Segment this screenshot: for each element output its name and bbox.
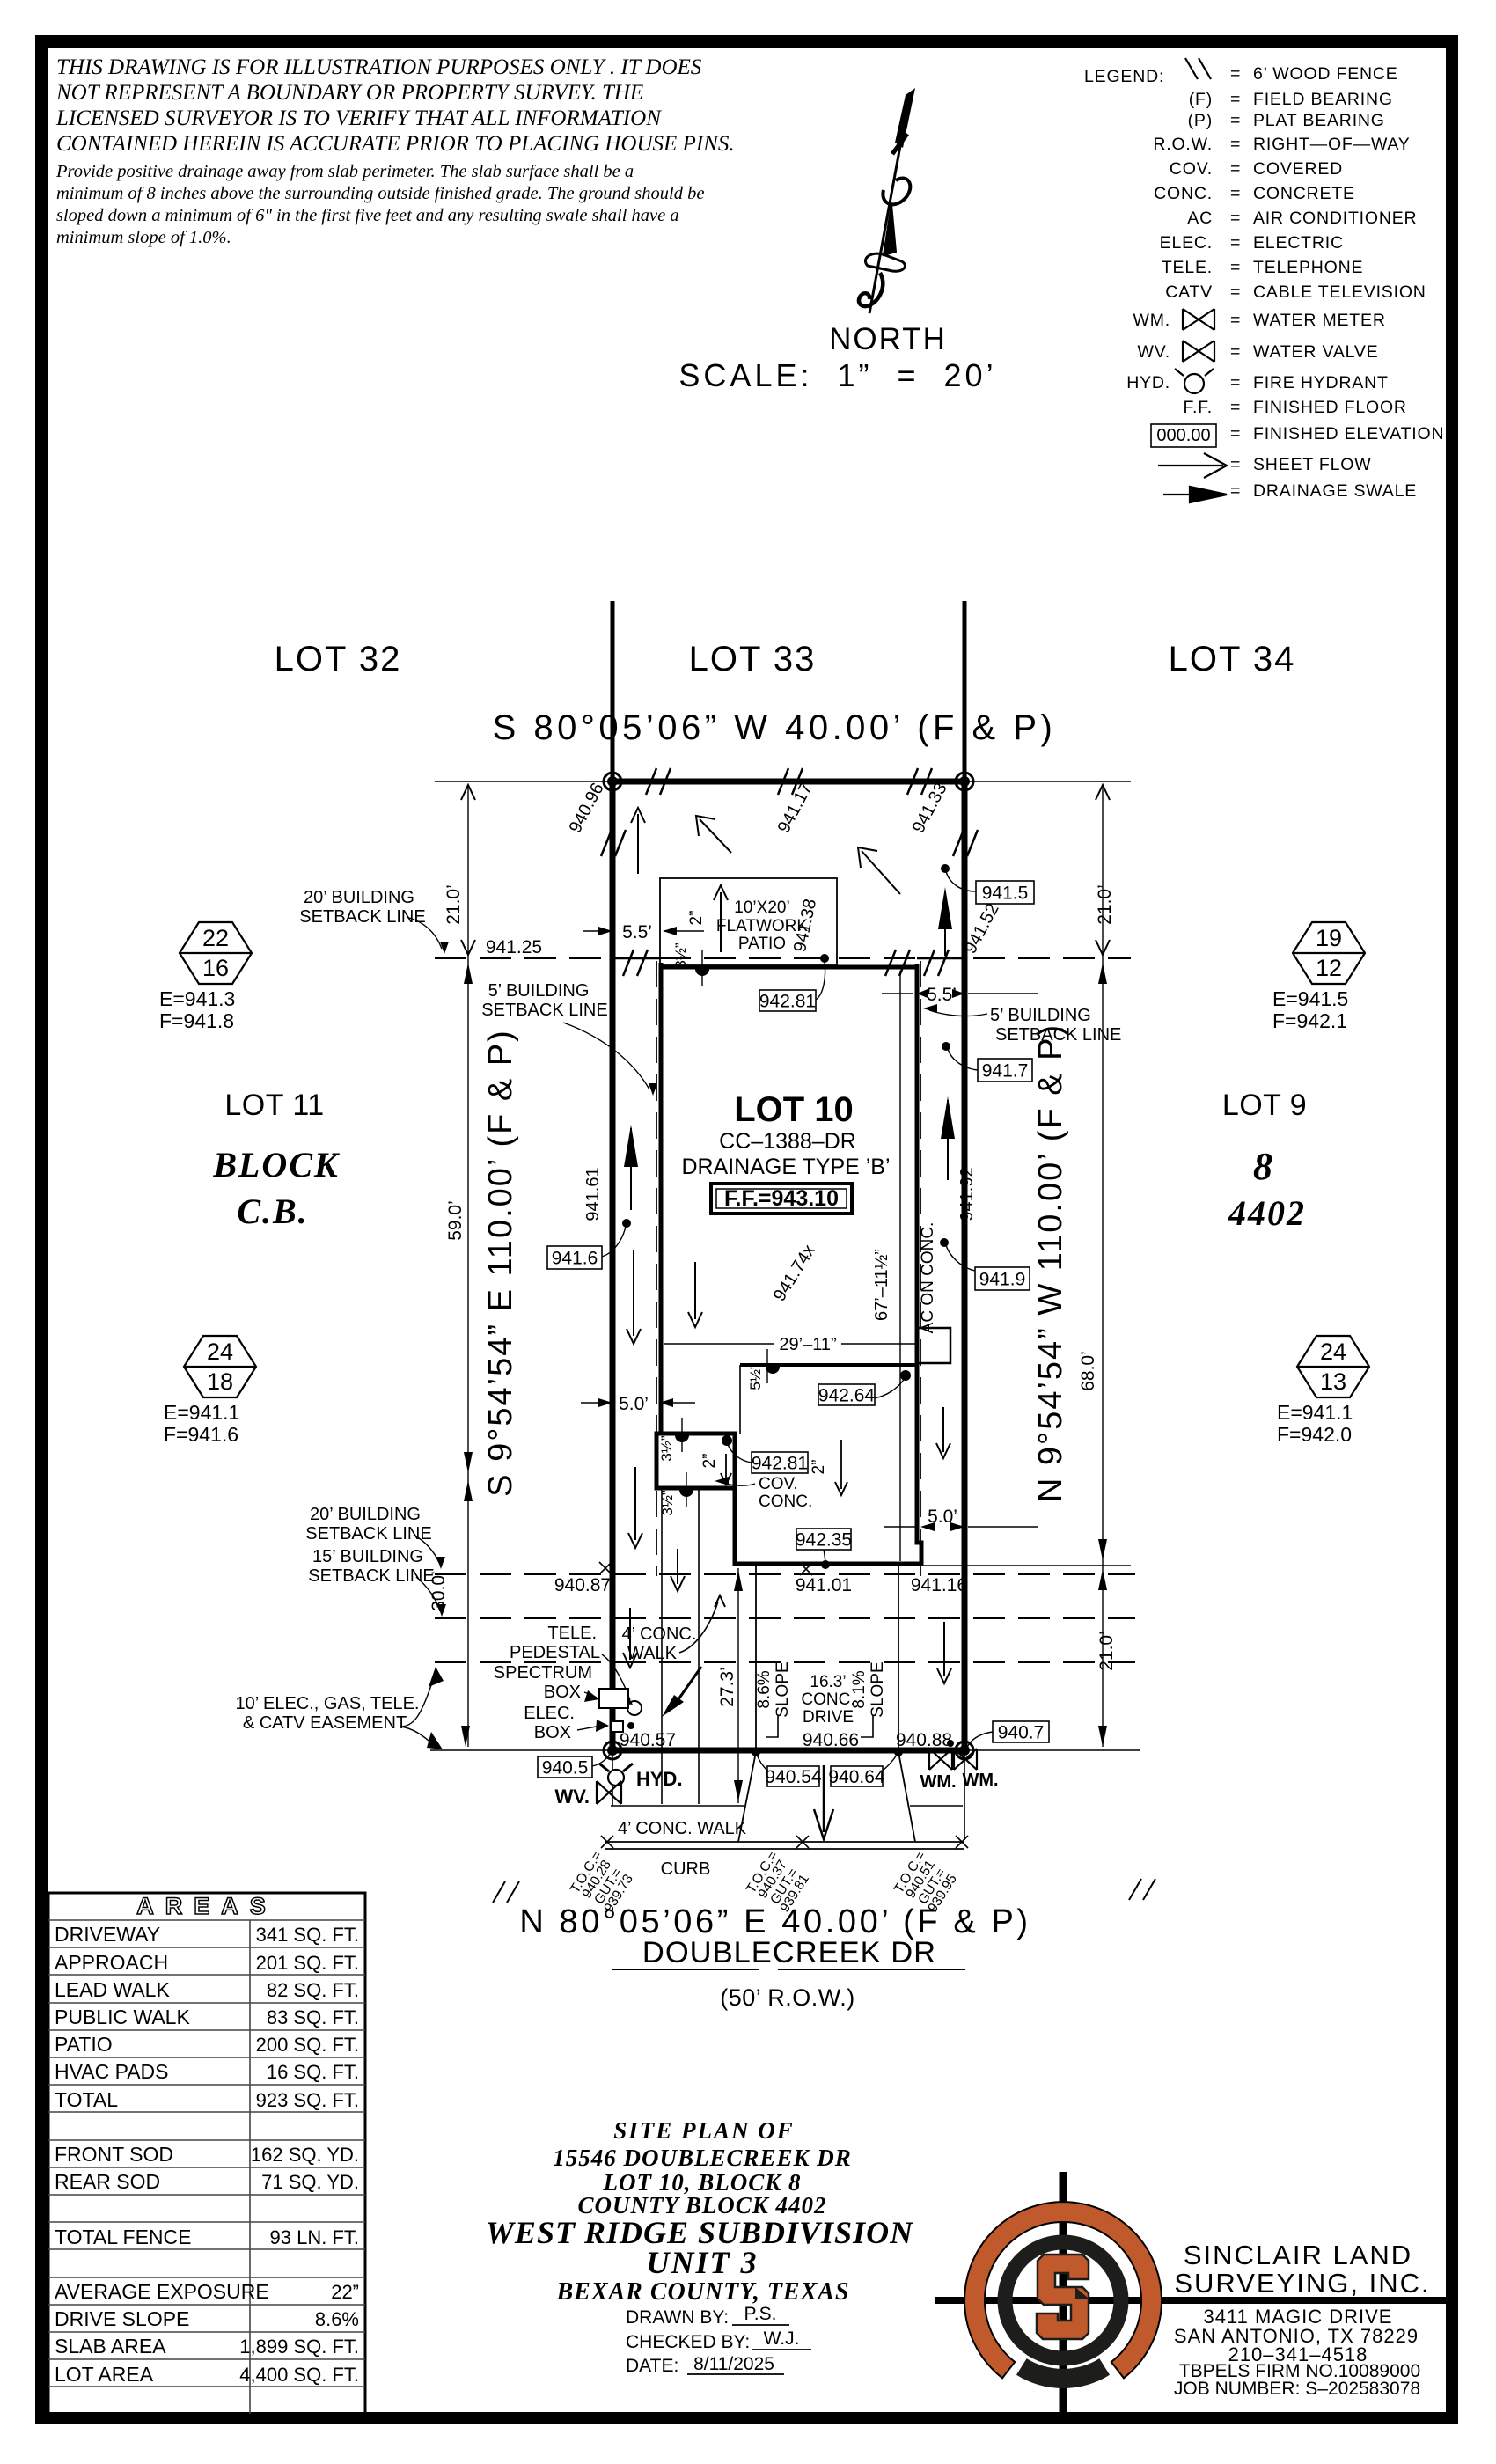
svg-text:=: = — [1230, 455, 1241, 474]
svg-text:AVERAGE EXPOSURE: AVERAGE EXPOSURE — [55, 2280, 269, 2303]
svg-text:941.16: 941.16 — [911, 1575, 967, 1595]
svg-text:10’ ELEC., GAS, TELE.: 10’ ELEC., GAS, TELE. — [236, 1694, 420, 1713]
svg-text:15546 DOUBLECREEK DR: 15546 DOUBLECREEK DR — [553, 2145, 852, 2171]
svg-text:DRIVEWAY: DRIVEWAY — [55, 1923, 160, 1946]
svg-text:59.0’: 59.0’ — [445, 1200, 466, 1241]
svg-text:941.9: 941.9 — [979, 1269, 1026, 1289]
svg-text:PEDESTAL: PEDESTAL — [510, 1643, 600, 1662]
svg-text:DRAINAGE SWALE: DRAINAGE SWALE — [1253, 481, 1417, 501]
svg-text:E=941.1: E=941.1 — [1277, 1401, 1353, 1424]
svg-text:FRONT SOD: FRONT SOD — [55, 2143, 173, 2166]
svg-text:18: 18 — [207, 1368, 233, 1395]
svg-text:16: 16 — [202, 955, 229, 981]
svg-text:83 SQ. FT.: 83 SQ. FT. — [267, 2006, 359, 2028]
svg-text:CONC.: CONC. — [759, 1492, 812, 1511]
svg-text:67’–11½”: 67’–11½” — [872, 1249, 891, 1321]
svg-text:LOT 32: LOT 32 — [275, 640, 402, 678]
svg-text:=: = — [1230, 184, 1241, 203]
svg-text:LOT 10: LOT 10 — [734, 1090, 854, 1129]
svg-text:5.5’: 5.5’ — [927, 985, 957, 1005]
svg-text:3½”: 3½” — [672, 942, 689, 969]
svg-text:1,899 SQ. FT.: 1,899 SQ. FT. — [239, 2336, 359, 2358]
svg-text:LOT 11: LOT 11 — [224, 1089, 324, 1122]
svg-text:ELEC.: ELEC. — [524, 1704, 575, 1723]
svg-text:DOUBLECREEK DR: DOUBLECREEK DR — [642, 1936, 936, 1969]
svg-text:SURVEYING, INC.: SURVEYING, INC. — [1174, 2268, 1430, 2299]
svg-text:S 9°54’54” E 110.00’ (F &: S 9°54’54” E 110.00’ (F & P) — [482, 1029, 519, 1497]
svg-text:(50’ R.O.W.): (50’ R.O.W.) — [720, 1984, 855, 2011]
svg-text:SHEET FLOW: SHEET FLOW — [1253, 455, 1371, 474]
svg-text:=: = — [1230, 342, 1241, 362]
svg-text:JOB NUMBER: S–202583078: JOB NUMBER: S–202583078 — [1174, 2379, 1420, 2399]
svg-text:5’ BUILDING: 5’ BUILDING — [488, 981, 590, 1001]
svg-text:21.0’: 21.0’ — [1095, 884, 1115, 925]
svg-text:942.35: 942.35 — [796, 1529, 852, 1550]
svg-text:162 SQ. YD.: 162 SQ. YD. — [251, 2144, 359, 2166]
svg-text:CONTAINED HEREIN IS ACCURATE P: CONTAINED HEREIN IS ACCURATE PRIOR TO PL… — [56, 132, 735, 156]
svg-text:F=942.1: F=942.1 — [1272, 1009, 1347, 1032]
svg-text:20’ BUILDING: 20’ BUILDING — [304, 888, 414, 907]
svg-text:E=941.5: E=941.5 — [1272, 987, 1348, 1010]
svg-text:923 SQ. FT.: 923 SQ. FT. — [256, 2089, 359, 2111]
svg-text:941.7: 941.7 — [982, 1060, 1029, 1081]
svg-text:LOT 33: LOT 33 — [689, 640, 817, 678]
svg-text:8.1%: 8.1% — [850, 1670, 869, 1708]
svg-text:SETBACK LINE: SETBACK LINE — [308, 1566, 434, 1586]
svg-text:C.B.: C.B. — [237, 1192, 308, 1231]
svg-text:HYD.: HYD. — [1126, 373, 1170, 392]
svg-text:UNIT 3: UNIT 3 — [647, 2245, 759, 2280]
svg-text:940.87: 940.87 — [554, 1575, 611, 1595]
svg-text:=: = — [1230, 311, 1241, 330]
svg-text:ELEC.: ELEC. — [1160, 233, 1213, 253]
svg-text:WM.: WM. — [962, 1771, 998, 1790]
svg-text:BOX: BOX — [544, 1683, 581, 1702]
svg-text:E=941.3: E=941.3 — [159, 987, 235, 1010]
svg-text:21.0’: 21.0’ — [444, 884, 464, 925]
svg-text:=: = — [1230, 258, 1241, 277]
svg-text:WATER VALVE: WATER VALVE — [1253, 342, 1378, 362]
svg-text:AC: AC — [1187, 209, 1213, 228]
svg-text:& CATV EASEMENT: & CATV EASEMENT — [243, 1713, 407, 1733]
svg-text:CC–1388–DR: CC–1388–DR — [719, 1129, 856, 1154]
svg-text:RIGHT—OF—WAY: RIGHT—OF—WAY — [1253, 135, 1411, 154]
svg-text:COV.: COV. — [1170, 159, 1213, 179]
svg-text:DATE:: DATE: — [626, 2356, 678, 2376]
svg-text:TELE.: TELE. — [547, 1624, 597, 1643]
svg-text:TOTAL: TOTAL — [55, 2088, 118, 2111]
svg-text:APPROACH: APPROACH — [55, 1951, 168, 1974]
svg-text:940.88: 940.88 — [896, 1730, 952, 1750]
svg-text:HVAC PADS: HVAC PADS — [55, 2060, 169, 2083]
svg-text:SLOPE: SLOPE — [869, 1661, 887, 1717]
svg-text:=: = — [1230, 135, 1241, 154]
svg-text:940.54: 940.54 — [765, 1767, 822, 1787]
svg-text:15’ BUILDING: 15’ BUILDING — [312, 1547, 423, 1566]
svg-text:minimum of 8 inches above the: minimum of 8 inches above the surroundin… — [56, 184, 704, 203]
svg-text:5.0’: 5.0’ — [619, 1394, 649, 1414]
svg-text:8.6%: 8.6% — [315, 2308, 359, 2330]
svg-text:S 80°05’06” W 40.00’ (F &: S 80°05’06” W 40.00’ (F & P) — [493, 708, 1057, 747]
svg-text:29’–11”: 29’–11” — [779, 1335, 836, 1354]
svg-text:PUBLIC WALK: PUBLIC WALK — [55, 2006, 190, 2028]
svg-text:NORTH: NORTH — [829, 322, 947, 356]
svg-text:WATER METER: WATER METER — [1253, 311, 1386, 330]
svg-text:BLOCK: BLOCK — [212, 1145, 340, 1184]
svg-text:LOT 9: LOT 9 — [1222, 1089, 1307, 1122]
svg-text:940.66: 940.66 — [803, 1730, 859, 1750]
svg-text:CURB: CURB — [661, 1859, 711, 1879]
svg-text:DRAINAGE TYPE ’B’: DRAINAGE TYPE ’B’ — [681, 1155, 890, 1179]
svg-text:COVERED: COVERED — [1253, 159, 1343, 179]
svg-text:CONC.: CONC. — [801, 1690, 854, 1709]
svg-text:LICENSED SURVEYOR IS TO VERIFY: LICENSED SURVEYOR IS TO VERIFY THAT ALL … — [55, 106, 662, 130]
svg-text:SLOPE: SLOPE — [774, 1661, 792, 1717]
svg-text:F.F.: F.F. — [1183, 398, 1213, 417]
svg-text:NOT REPRESENT A BOUNDARY OR PR: NOT REPRESENT A BOUNDARY OR PROPERTY SUR… — [55, 81, 643, 105]
svg-text:LEAD WALK: LEAD WALK — [55, 1978, 170, 2001]
svg-text:TELEPHONE: TELEPHONE — [1253, 258, 1363, 277]
svg-text:CONCRETE: CONCRETE — [1253, 184, 1355, 203]
svg-text:940.57: 940.57 — [620, 1730, 676, 1750]
svg-text:CABLE TELEVISION: CABLE TELEVISION — [1253, 282, 1426, 302]
svg-text:=: = — [1230, 233, 1241, 253]
svg-text:WM.: WM. — [920, 1772, 956, 1792]
svg-text:F=941.8: F=941.8 — [159, 1009, 234, 1032]
svg-text:2”: 2” — [700, 1454, 719, 1469]
svg-text:(F): (F) — [1189, 90, 1213, 109]
svg-text:BEXAR COUNTY, TEXAS: BEXAR COUNTY, TEXAS — [555, 2278, 849, 2306]
svg-text:=: = — [1230, 424, 1241, 444]
svg-text:10’X20’: 10’X20’ — [734, 898, 789, 917]
svg-text:5’ BUILDING: 5’ BUILDING — [990, 1006, 1091, 1025]
svg-text:CATV: CATV — [1165, 282, 1213, 302]
svg-text:201 SQ. FT.: 201 SQ. FT. — [256, 1952, 359, 1974]
svg-text:24: 24 — [1320, 1338, 1346, 1365]
svg-text:SETBACK LINE: SETBACK LINE — [305, 1524, 431, 1544]
svg-text:PATIO: PATIO — [55, 2033, 113, 2056]
svg-text:4’ CONC.: 4’ CONC. — [622, 1624, 697, 1644]
svg-text:=: = — [1230, 373, 1241, 392]
svg-text:8: 8 — [1253, 1145, 1272, 1188]
svg-text:93 LN. FT.: 93 LN. FT. — [270, 2226, 359, 2248]
svg-text:PLAT BEARING: PLAT BEARING — [1253, 111, 1385, 130]
svg-text:SITE PLAN OF: SITE PLAN OF — [613, 2117, 795, 2144]
svg-text:AC ON CONC.: AC ON CONC. — [919, 1222, 937, 1334]
svg-text:REAR SOD: REAR SOD — [55, 2170, 160, 2193]
svg-text:941.61: 941.61 — [583, 1167, 603, 1221]
svg-text:SCALE: 1” = 20’: SCALE: 1” = 20’ — [678, 357, 996, 393]
svg-text:SINCLAIR LAND: SINCLAIR LAND — [1184, 2240, 1412, 2270]
svg-text:AREAS: AREAS — [136, 1893, 277, 1919]
svg-text:21.0’: 21.0’ — [1096, 1631, 1117, 1671]
svg-text:000.00: 000.00 — [1156, 426, 1210, 445]
svg-text:4402: 4402 — [1228, 1193, 1306, 1233]
svg-text:THIS DRAWING IS FOR ILLUSTRATI: THIS DRAWING IS FOR ILLUSTRATION PURPOSE… — [56, 55, 702, 79]
svg-text:5.0’: 5.0’ — [928, 1507, 957, 1527]
svg-text:FINISHED ELEVATION: FINISHED ELEVATION — [1253, 424, 1444, 444]
svg-text:3½”: 3½” — [659, 1490, 676, 1516]
svg-text:=: = — [1230, 481, 1241, 501]
svg-text:P.S.: P.S. — [744, 2304, 777, 2324]
svg-text:SPECTRUM: SPECTRUM — [494, 1663, 592, 1683]
svg-text:PATIO: PATIO — [738, 935, 786, 953]
svg-text:8.6%: 8.6% — [755, 1670, 774, 1708]
svg-text:2”: 2” — [810, 1460, 828, 1475]
svg-text:W.J.: W.J. — [764, 2328, 800, 2349]
svg-text:SLAB AREA: SLAB AREA — [55, 2335, 166, 2358]
svg-text:6’ WOOD FENCE: 6’ WOOD FENCE — [1253, 64, 1398, 84]
svg-text:CHECKED BY:: CHECKED BY: — [626, 2332, 750, 2352]
svg-text:19: 19 — [1316, 925, 1342, 951]
svg-text:68.0’: 68.0’ — [1078, 1351, 1098, 1391]
svg-text:16.3’: 16.3’ — [810, 1673, 846, 1691]
svg-text:LEGEND:: LEGEND: — [1084, 67, 1164, 86]
svg-text:=: = — [1230, 159, 1241, 179]
svg-text:942.81: 942.81 — [752, 1453, 808, 1473]
svg-text:5½”: 5½” — [747, 1364, 764, 1390]
svg-text:=: = — [1230, 282, 1241, 302]
svg-text:HYD.: HYD. — [636, 1768, 683, 1790]
svg-text:=: = — [1230, 398, 1241, 417]
svg-text:2”: 2” — [687, 911, 706, 926]
svg-text:71 SQ. YD.: 71 SQ. YD. — [261, 2171, 359, 2193]
svg-text:22”: 22” — [331, 2281, 359, 2303]
svg-text:=: = — [1230, 90, 1241, 109]
svg-text:R.O.W.: R.O.W. — [1153, 135, 1213, 154]
svg-text:DRIVE: DRIVE — [803, 1708, 854, 1727]
svg-text:3½”: 3½” — [658, 1435, 675, 1462]
svg-text:N 9°54’54” W 110.00’ (F &: N 9°54’54” W 110.00’ (F & P) — [1032, 1023, 1069, 1502]
svg-text:941.5: 941.5 — [982, 883, 1029, 903]
svg-text:FIELD BEARING: FIELD BEARING — [1253, 90, 1393, 109]
svg-text:SETBACK LINE: SETBACK LINE — [481, 1001, 607, 1020]
svg-text:941.92: 941.92 — [957, 1167, 977, 1221]
svg-text:sloped down a minimum of 6" in: sloped down a minimum of 6" in the first… — [56, 206, 679, 225]
svg-text:F=942.0: F=942.0 — [1277, 1423, 1352, 1446]
svg-text:=: = — [1230, 111, 1241, 130]
svg-text:TELE.: TELE. — [1162, 258, 1213, 277]
svg-text:CONC.: CONC. — [1154, 184, 1213, 203]
svg-text:5.5’: 5.5’ — [622, 922, 652, 942]
svg-text:941.01: 941.01 — [796, 1575, 852, 1595]
svg-text:941.25: 941.25 — [486, 937, 542, 957]
svg-text:FLATWORK: FLATWORK — [716, 917, 808, 935]
svg-text:941.6: 941.6 — [552, 1248, 598, 1268]
svg-text:WV.: WV. — [554, 1786, 590, 1808]
svg-text:Provide positive drainage away: Provide positive drainage away from slab… — [55, 162, 634, 181]
svg-text:82 SQ. FT.: 82 SQ. FT. — [267, 1979, 359, 2001]
svg-text:24: 24 — [207, 1338, 233, 1365]
svg-text:(P): (P) — [1188, 111, 1213, 130]
svg-text:WM.: WM. — [1133, 311, 1170, 330]
svg-text:4,400 SQ. FT.: 4,400 SQ. FT. — [239, 2364, 359, 2386]
svg-text:AIR CONDITIONER: AIR CONDITIONER — [1253, 209, 1417, 228]
svg-text:DRAWN BY:: DRAWN BY: — [626, 2307, 729, 2328]
svg-text:BOX: BOX — [534, 1723, 571, 1742]
svg-text:WALK: WALK — [627, 1644, 678, 1663]
svg-text:F=941.6: F=941.6 — [164, 1423, 238, 1446]
svg-text:940.7: 940.7 — [998, 1722, 1045, 1742]
svg-text:16 SQ. FT.: 16 SQ. FT. — [267, 2061, 359, 2083]
svg-text:COV.: COV. — [759, 1475, 798, 1493]
svg-text:4’ CONC. WALK: 4’ CONC. WALK — [618, 1819, 747, 1838]
svg-text:F.F.=943.10: F.F.=943.10 — [724, 1186, 839, 1211]
svg-text:LOT 34: LOT 34 — [1169, 640, 1296, 678]
svg-text:minimum slope of 1.0%.: minimum slope of 1.0%. — [56, 228, 231, 247]
svg-text:FIRE HYDRANT: FIRE HYDRANT — [1253, 373, 1389, 392]
svg-text:940.64: 940.64 — [828, 1767, 885, 1787]
svg-text:FINISHED FLOOR: FINISHED FLOOR — [1253, 398, 1407, 417]
svg-text:940.5: 940.5 — [542, 1757, 589, 1778]
svg-text:LOT AREA: LOT AREA — [55, 2363, 154, 2386]
svg-text:=: = — [1230, 209, 1241, 228]
svg-text:27.3’: 27.3’ — [717, 1667, 737, 1707]
svg-text:200 SQ. FT.: 200 SQ. FT. — [256, 2034, 359, 2056]
svg-text:20’ BUILDING: 20’ BUILDING — [310, 1505, 421, 1524]
svg-text:22: 22 — [202, 925, 229, 951]
svg-text:341 SQ. FT.: 341 SQ. FT. — [256, 1924, 359, 1946]
svg-text:E=941.1: E=941.1 — [164, 1401, 239, 1424]
svg-text:DRIVE SLOPE: DRIVE SLOPE — [55, 2307, 189, 2330]
svg-text:WV.: WV. — [1138, 342, 1170, 362]
svg-text:13: 13 — [1320, 1368, 1346, 1395]
svg-text:942.64: 942.64 — [818, 1385, 876, 1405]
svg-text:=: = — [1230, 64, 1241, 84]
svg-text:942.81: 942.81 — [759, 991, 816, 1011]
svg-text:8/11/2025: 8/11/2025 — [693, 2354, 774, 2374]
svg-text:N 80°05’06” E 40.00’ (F &: N 80°05’06” E 40.00’ (F & P) — [519, 1903, 1030, 1940]
svg-text:ELECTRIC: ELECTRIC — [1253, 233, 1344, 253]
svg-text:TOTAL FENCE: TOTAL FENCE — [55, 2226, 192, 2248]
svg-text:12: 12 — [1316, 955, 1342, 981]
